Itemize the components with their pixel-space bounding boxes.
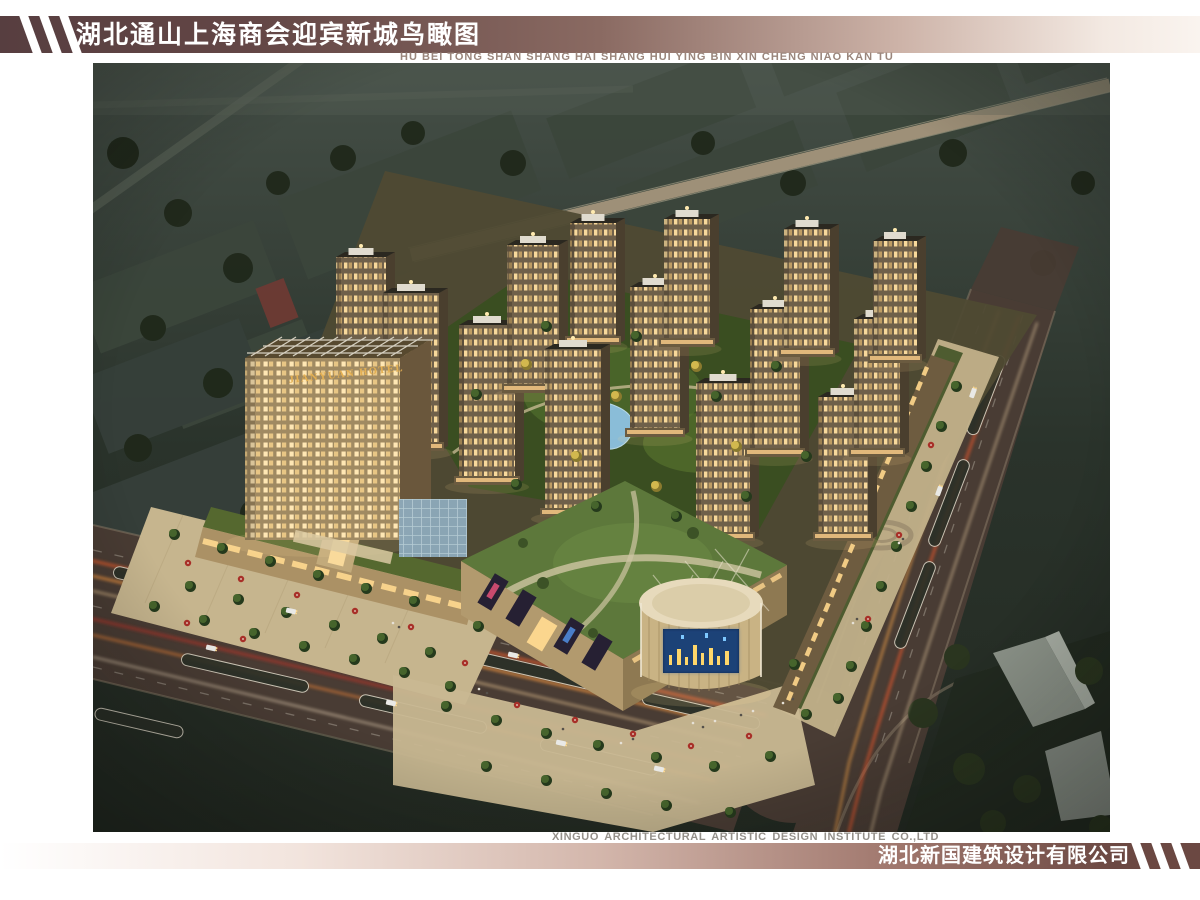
company-name: 湖北新国建筑设计有限公司 (878, 843, 1130, 869)
aerial-rendering: JIANYUAN HOTEL (93, 63, 1110, 832)
page-subtitle-pinyin: HU BEI TONG SHAN SHANG HAI SHANG HUI YIN… (400, 51, 894, 63)
header-bar: 湖北通山上海商会迎宾新城鸟瞰图 (0, 16, 1200, 53)
rendering-scene: JIANYUAN HOTEL (93, 63, 1110, 832)
corner-stripe (1131, 843, 1149, 869)
vignette (93, 63, 1110, 832)
page-title: 湖北通山上海商会迎宾新城鸟瞰图 (76, 16, 481, 53)
corner-stripe (1151, 843, 1169, 869)
footer-bar: 湖北新国建筑设计有限公司 (0, 843, 1200, 869)
corner-stripe (1171, 843, 1189, 869)
design-institute-credit: XINGUO ARCHITECTURAL ARTISTIC DESIGN INS… (552, 831, 939, 843)
corner-stripe (19, 16, 41, 53)
page: { "header": { "title_cn": "湖北通山上海商会迎宾新城鸟… (0, 0, 1200, 900)
corner-stripe (39, 16, 61, 53)
